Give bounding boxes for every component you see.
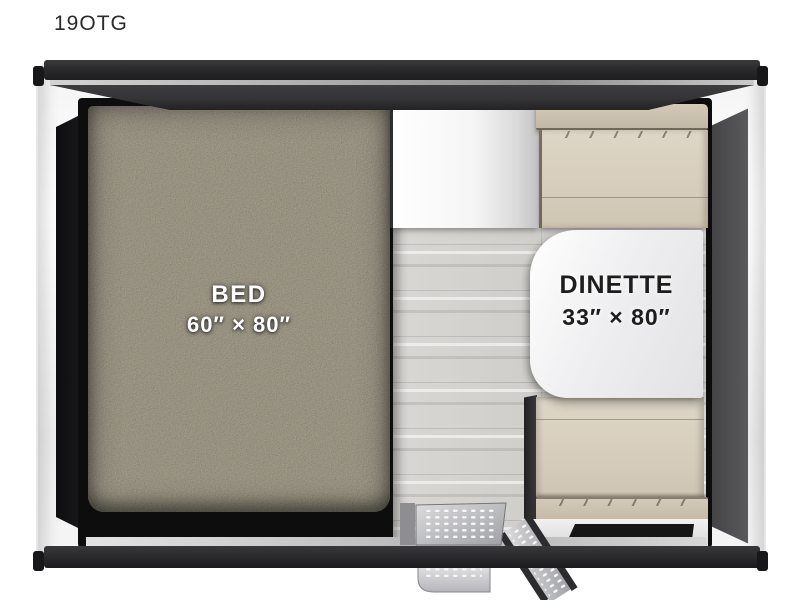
right-wall-panel (710, 104, 748, 548)
dinette-dimensions: 33″ × 80″ (562, 304, 670, 331)
roof-bar-right-cap (757, 66, 768, 86)
dinette-label: DINETTE (560, 271, 674, 300)
step-well-wall (400, 503, 415, 545)
bumper-right-cap (757, 551, 768, 571)
cushion-seam (542, 197, 708, 198)
roof-bar-left-cap (33, 66, 44, 86)
bed-label-block: BED 60″ × 80″ (187, 281, 291, 338)
model-number: 19OTG (54, 12, 128, 36)
roof-front-bar (44, 60, 760, 80)
bed-label: BED (187, 281, 291, 309)
cushion-seam (536, 419, 704, 420)
dinette-seat-bottom-cushion (536, 397, 704, 497)
roof-overhang (50, 85, 754, 110)
rear-bumper-bar (44, 546, 760, 568)
dinette-table: DINETTE 33″ × 80″ (530, 230, 703, 398)
bed-dimensions: 60″ × 80″ (187, 312, 291, 338)
step-perforations (424, 509, 498, 540)
step-perforations (426, 567, 482, 580)
floorplan-page: 19OTG BED 60″ × 80″ DINETTE 33″ (0, 0, 800, 600)
storage-cabinet (390, 106, 540, 228)
bumper-left-cap (33, 551, 44, 571)
dinette-seat-top-cushion (539, 130, 708, 228)
seat-stitching (546, 131, 704, 138)
bed-area: BED 60″ × 80″ (88, 106, 390, 512)
